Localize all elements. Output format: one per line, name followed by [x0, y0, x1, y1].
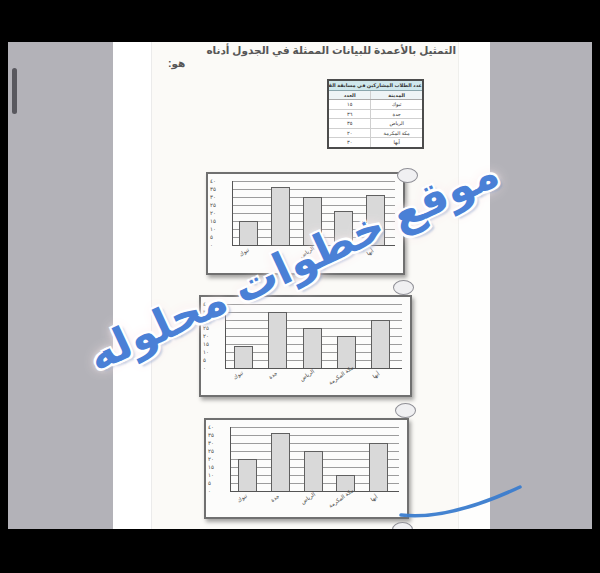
table-cell-count: ٣٦ [329, 110, 370, 119]
table-cell-city: جدة [370, 110, 422, 119]
table-cell-count: ٣٠ [329, 138, 370, 147]
bar [304, 451, 323, 491]
table-row: تبوك١٥ [329, 100, 422, 110]
question-title: التمثيل بالأعمدة للبيانات الممثلة في الج… [165, 44, 456, 56]
y-axis-tick-label: ١٥ [210, 218, 230, 225]
y-axis-tick-label: ١٠ [210, 226, 230, 233]
y-axis-tick-label: ٤٠ [210, 178, 230, 185]
bar [334, 211, 353, 245]
table-col-count-header: العدد [329, 91, 370, 99]
table-cell-city: أبها [370, 138, 422, 147]
y-axis-tick-label: ١٥ [203, 341, 223, 348]
y-axis-tick-label: ٠ [208, 488, 228, 495]
chart-plot [225, 304, 402, 369]
y-axis-tick-label: ٣٠ [210, 194, 230, 201]
y-axis-tick-label: ٣٥ [210, 186, 230, 193]
table-row: الرياض٣٥ [329, 119, 422, 129]
letterbox-top [0, 0, 600, 42]
bar [369, 443, 388, 491]
table-cell-count: ٣٥ [329, 119, 370, 128]
y-axis-tick-label: ٢٠ [210, 210, 230, 217]
bar [337, 336, 356, 368]
option-1-radio[interactable] [397, 168, 418, 183]
y-axis-tick-label: ٥ [203, 357, 223, 364]
bar [371, 320, 390, 368]
page-divider-line [151, 42, 152, 529]
table-row: أبها٣٠ [329, 138, 422, 147]
y-axis-tick-label: ٣٥ [208, 432, 228, 439]
y-axis-tick-label: ٤٠ [208, 424, 228, 431]
bar [366, 195, 385, 245]
y-axis-tick-label: ٣٠ [208, 440, 228, 447]
y-axis-tick-label: ١٥ [208, 464, 228, 471]
y-axis-tick-label: ١٠ [208, 472, 228, 479]
y-axis-tick-label: ٢٥ [203, 325, 223, 332]
table-cell-count: ١٥ [329, 100, 370, 109]
page-divider-line-right [458, 42, 459, 529]
table-row: جدة٣٦ [329, 110, 422, 120]
y-axis-tick-label: ٠ [203, 365, 223, 372]
bar [234, 346, 253, 368]
y-axis-tick-label: ٢٥ [208, 448, 228, 455]
letterbox-right [592, 0, 600, 573]
option-2-radio[interactable] [393, 280, 414, 295]
y-axis-tick-label: ٣٠ [203, 317, 223, 324]
table-cell-city: مكة المكرمة [370, 129, 422, 138]
bar [271, 187, 290, 245]
table-cell-count: ٢٠ [329, 129, 370, 138]
table-row: مكة المكرمة٢٠ [329, 129, 422, 139]
option-3-radio[interactable] [395, 403, 416, 418]
table-header-row: المدينةالعدد [329, 91, 422, 100]
y-axis-tick-label: ٢٠ [203, 333, 223, 340]
y-axis-tick-label: ٢٥ [210, 202, 230, 209]
y-axis-tick-label: ٥ [208, 480, 228, 487]
data-table: عدد الطلاب المشاركين في مسابقة القرآنالم… [327, 79, 424, 149]
table-title: عدد الطلاب المشاركين في مسابقة القرآن [329, 81, 422, 91]
chart-plot [230, 427, 399, 492]
answer-chart-option-2: ٤٠٣٥٣٠٢٥٢٠١٥١٠٥٠تبوكجدةالرياضمكة المكرمة… [199, 295, 412, 397]
page-margin-strip-right [459, 42, 490, 529]
y-axis-tick-label: ٤٠ [203, 301, 223, 308]
answer-chart-option-1: ٤٠٣٥٣٠٢٥٢٠١٥١٠٥٠تبوكجدةالرياضمكة المكرمة… [206, 172, 405, 275]
page-margin-strip [113, 42, 151, 529]
y-axis-tick-label: ٣٥ [203, 309, 223, 316]
y-axis-tick-label: ٠ [210, 242, 230, 249]
answer-chart-option-3: ٤٠٣٥٣٠٢٥٢٠١٥١٠٥٠تبوكجدةالرياضمكة المكرمة… [204, 418, 409, 519]
table-col-city-header: المدينة [370, 91, 422, 99]
table-cell-city: الرياض [370, 119, 422, 128]
chart-plot [232, 181, 395, 246]
question-title-tail: هو: [168, 57, 185, 69]
bar [271, 433, 290, 491]
letterbox-left [0, 0, 8, 573]
bar [268, 312, 287, 368]
letterbox-bottom [0, 529, 600, 573]
y-axis-tick-label: ٥ [210, 234, 230, 241]
table-cell-city: تبوك [370, 100, 422, 109]
bar [303, 328, 322, 368]
bar [303, 197, 322, 245]
y-axis-tick-label: ٢٠ [208, 456, 228, 463]
scrollbar-thumb[interactable] [12, 68, 17, 114]
y-axis-tick-label: ١٠ [203, 349, 223, 356]
bar [238, 459, 257, 491]
